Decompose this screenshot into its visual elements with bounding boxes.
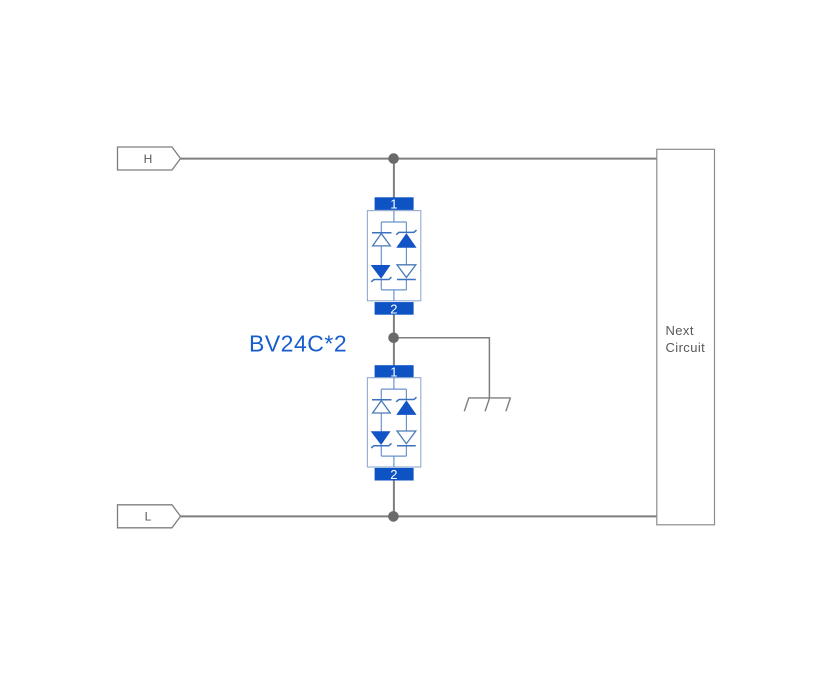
svg-text:L: L xyxy=(145,510,152,524)
svg-text:H: H xyxy=(144,152,153,166)
svg-text:2: 2 xyxy=(390,301,397,316)
svg-text:1: 1 xyxy=(390,364,397,379)
svg-text:1: 1 xyxy=(390,197,397,212)
svg-text:2: 2 xyxy=(390,467,397,482)
svg-text:Circuit: Circuit xyxy=(666,340,706,355)
svg-text:BV24C*2: BV24C*2 xyxy=(249,331,347,357)
svg-text:Next: Next xyxy=(666,323,694,338)
